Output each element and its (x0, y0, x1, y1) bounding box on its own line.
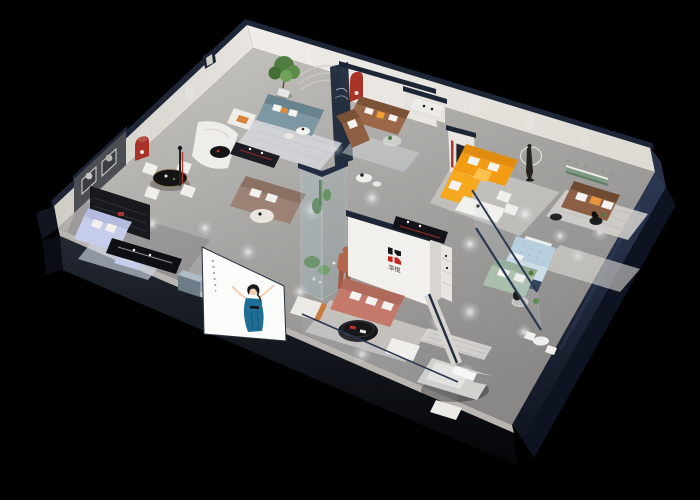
framed-art-icon (86, 173, 93, 180)
red-stripe-art (451, 140, 454, 168)
black-coffee-table (210, 146, 230, 158)
glass-coffee-table (383, 136, 401, 146)
display-shelf (441, 244, 452, 302)
red-shelf-accent (118, 212, 124, 216)
floorplan-render: H U A Y U E (0, 0, 700, 500)
brand-logo: 华悦 (388, 247, 402, 275)
framed-art-icon (106, 155, 113, 162)
render-canvas: H U A Y U E (0, 0, 700, 500)
cream-coffee-table (250, 209, 274, 223)
